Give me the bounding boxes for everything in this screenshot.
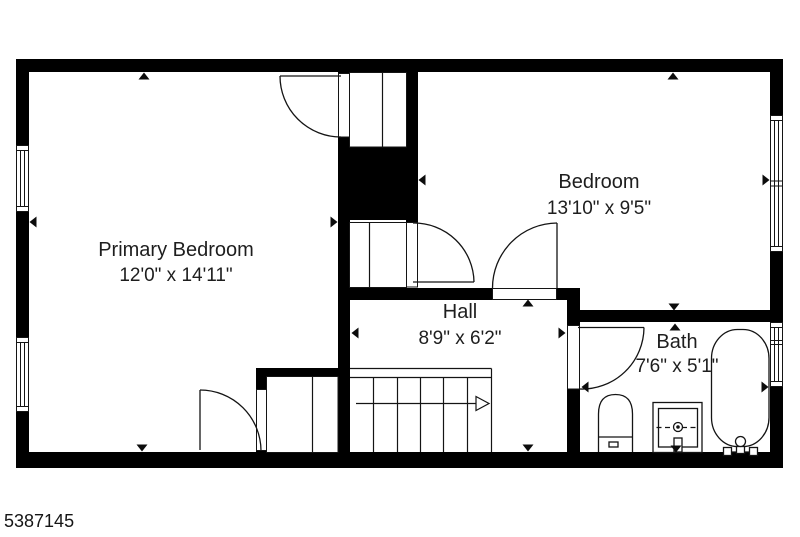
- bath-arrow-up: [670, 324, 681, 331]
- sink-vanity: [653, 403, 702, 453]
- bedroom-arrow-down: [669, 304, 680, 311]
- bedroom-closet-door-opening: [407, 223, 418, 288]
- toilet: [599, 395, 633, 453]
- bedroom-label: Bedroom: [558, 171, 639, 193]
- primary-bedroom-label: Primary Bedroom: [98, 239, 254, 261]
- primary-bedroom-arrow-left: [30, 217, 37, 228]
- bathtub: [712, 330, 770, 456]
- primary-bedroom-arrow-down: [137, 445, 148, 452]
- tub-handle-right: [750, 448, 758, 456]
- door-swing-arc: [580, 328, 645, 390]
- hall-dimensions: 8'9" x 6'2": [418, 328, 501, 349]
- door-bedroom: [493, 223, 558, 288]
- door-swing-arc: [280, 76, 341, 137]
- closet-bedroom: [350, 223, 407, 288]
- hall-arrow-up: [523, 300, 534, 307]
- primary-bedroom-arrow-right: [331, 217, 338, 228]
- stair-treads: [374, 378, 468, 453]
- window-bedroom-right: [771, 116, 783, 252]
- hall-arrow-left: [352, 328, 359, 339]
- hall-label: Hall: [443, 301, 477, 323]
- stair-direction-arrowhead: [476, 397, 489, 411]
- listing-id: 5387145: [4, 511, 74, 532]
- door-swing-arc: [493, 223, 558, 288]
- bathtub-basin: [712, 330, 770, 447]
- tub-spout: [737, 447, 745, 454]
- window-left-lower: [17, 338, 29, 412]
- bedroom-arrow-right: [763, 175, 770, 186]
- hall-arrow-down: [523, 445, 534, 452]
- door-swing-arc: [200, 390, 261, 451]
- tub-faucet-head: [736, 437, 746, 447]
- bedroom-dimensions: 13'10" x 9'5": [547, 198, 651, 219]
- floor-plan-page: Primary Bedroom 12'0" x 14'11" Bedroom 1…: [0, 0, 800, 537]
- staircase: [350, 369, 492, 453]
- primary-closet-door-opening: [257, 390, 267, 451]
- toilet-flush-handle: [609, 442, 618, 447]
- door-primary-closet: [200, 390, 261, 451]
- bath-door-opening: [568, 326, 580, 390]
- window-left-upper: [17, 146, 29, 212]
- closet-primary: [267, 377, 339, 453]
- wall-bottom: [16, 452, 783, 468]
- bath-arrow-left: [582, 382, 589, 393]
- tub-handle-left: [724, 448, 732, 456]
- primary-bedroom-door-opening: [339, 74, 350, 138]
- bath-label: Bath: [656, 331, 697, 353]
- primary-bedroom-arrow-up: [139, 73, 150, 80]
- bath-dimensions: 7'6" x 5'1": [635, 356, 718, 377]
- wall-top: [16, 59, 783, 72]
- door-swing-arc: [413, 223, 474, 282]
- floor-plan: Primary Bedroom 12'0" x 14'11" Bedroom 1…: [0, 0, 800, 537]
- door-bedroom-closet: [413, 223, 474, 282]
- sink-drain-dot: [676, 425, 680, 429]
- primary-bedroom-dimensions: 12'0" x 14'11": [119, 265, 232, 286]
- bedroom-arrow-up: [668, 73, 679, 80]
- bedroom-arrow-left: [419, 175, 426, 186]
- door-primary-bedroom: [280, 76, 341, 137]
- chimney-block: [338, 147, 418, 220]
- wall-bath-top: [567, 310, 770, 322]
- door-bath: [578, 328, 644, 390]
- wall-primary-closet-top: [256, 368, 350, 377]
- bedroom-door-opening: [493, 289, 557, 300]
- window-bath-right: [771, 323, 783, 387]
- hall-arrow-right: [559, 328, 566, 339]
- closet-top: [350, 73, 407, 148]
